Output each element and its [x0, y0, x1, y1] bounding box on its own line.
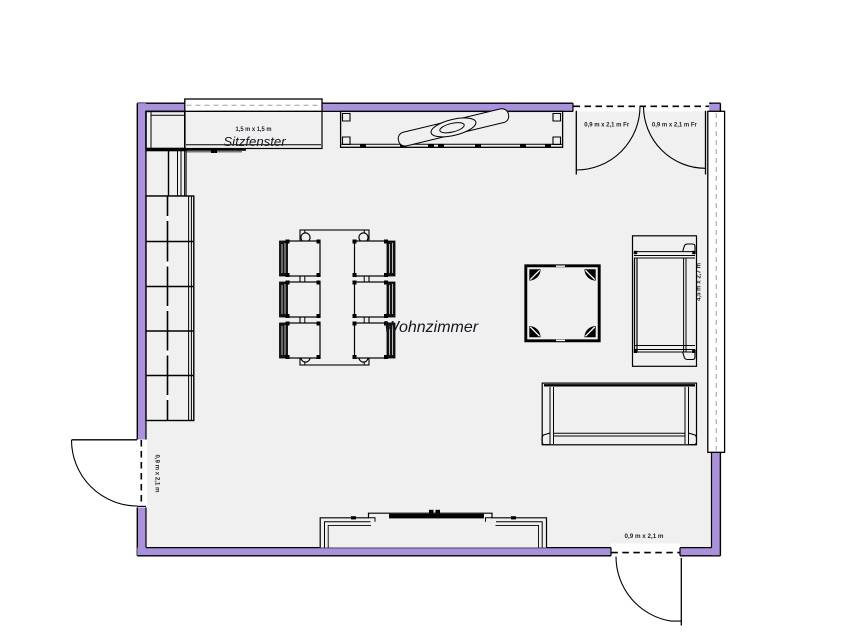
svg-text:0,9 m x 2,1 m: 0,9 m x 2,1 m — [625, 533, 664, 540]
svg-text:Sitzfenster: Sitzfenster — [223, 134, 286, 149]
svg-text:Wohnzimmer: Wohnzimmer — [384, 319, 479, 336]
svg-text:0,9 m x 2,1 m Fr: 0,9 m x 2,1 m Fr — [652, 122, 697, 129]
svg-text:1,5 m x 1,5 m: 1,5 m x 1,5 m — [236, 126, 272, 133]
svg-text:0,9 m x 2,1 m Fr: 0,9 m x 2,1 m Fr — [584, 122, 629, 129]
svg-text:0,9 m x 2,1 m: 0,9 m x 2,1 m — [154, 455, 161, 493]
